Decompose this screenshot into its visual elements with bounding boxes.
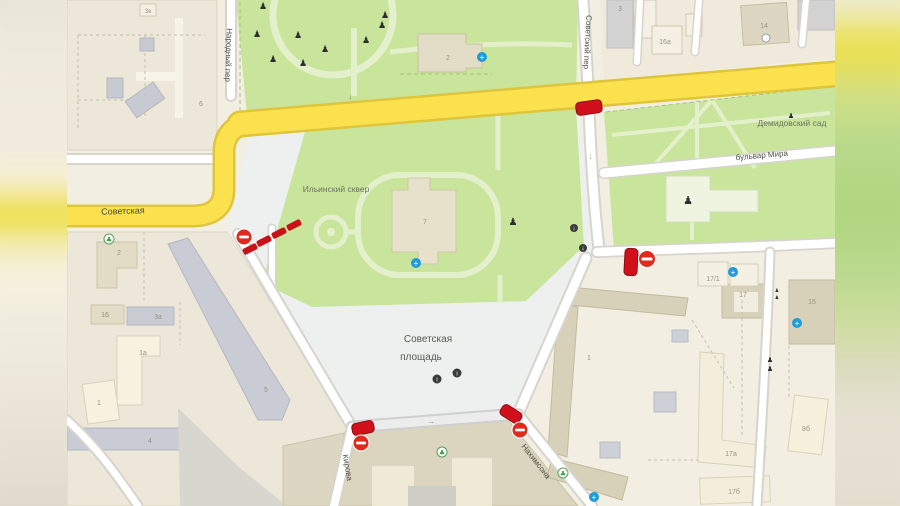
monument-icon: ♟ bbox=[509, 217, 518, 228]
park-label-ilyinsky-skver: Ильинский сквер bbox=[303, 184, 370, 194]
building-label: 7 bbox=[423, 219, 427, 226]
building-label: 5 bbox=[264, 387, 268, 394]
monument-icon: ♟ bbox=[269, 55, 277, 65]
monument-icon: ♟ bbox=[381, 11, 389, 21]
tree-icon-glyph: ♣ bbox=[106, 236, 112, 244]
building-label: 4 bbox=[148, 438, 152, 445]
medical-icon-glyph: + bbox=[731, 268, 736, 277]
monument-icon: ♟ bbox=[253, 30, 261, 40]
map-screenshot: Советская Народный пер Советский пер Кир… bbox=[0, 0, 900, 506]
blurred-backdrop-right bbox=[835, 0, 900, 506]
monument-icon: ♟ bbox=[259, 2, 267, 12]
no-entry-icon[interactable] bbox=[639, 251, 656, 268]
monument-icon: ♟ bbox=[683, 194, 693, 207]
building-label: 17б bbox=[728, 488, 740, 496]
no-entry-icon[interactable] bbox=[512, 422, 528, 438]
no-entry-icon[interactable] bbox=[353, 435, 369, 451]
info-icon-glyph: i bbox=[582, 247, 583, 253]
bus-stop-icon[interactable] bbox=[762, 34, 770, 42]
building-label: 16а bbox=[659, 39, 671, 46]
road-closure-marker[interactable] bbox=[624, 248, 638, 276]
building-label: 8б bbox=[802, 425, 810, 433]
info-icon-glyph: i bbox=[436, 378, 437, 384]
monument-icon: ♟ bbox=[294, 31, 302, 41]
tree-icon-glyph: ♣ bbox=[560, 470, 566, 478]
monument-icon: ♟ bbox=[378, 21, 386, 31]
street-label-narodny-per: Народный пер bbox=[223, 28, 234, 83]
building-label: 14 bbox=[760, 23, 768, 30]
medical-icon-glyph: + bbox=[480, 53, 485, 62]
square-label-line2: площадь bbox=[400, 352, 442, 363]
building-label: 2 bbox=[117, 250, 121, 257]
monument-icon: ♟ bbox=[788, 112, 794, 120]
building-label: 1а bbox=[139, 350, 147, 357]
tree-icon-glyph: ♣ bbox=[439, 449, 445, 457]
one-way-arrow-icon: → bbox=[347, 93, 356, 101]
monument-icon: ♟ bbox=[767, 365, 773, 373]
info-icon-glyph: i bbox=[456, 372, 457, 378]
one-way-arrow-icon: → bbox=[427, 417, 436, 427]
monument-icon: ♟ bbox=[299, 59, 307, 69]
monument-icon: ♟ bbox=[321, 45, 329, 55]
building-label: 3а bbox=[154, 314, 162, 321]
medical-icon-glyph: + bbox=[795, 319, 800, 328]
square-label-line1: Советская bbox=[404, 334, 452, 345]
building-label: 3в bbox=[145, 9, 152, 15]
building-label: 17/1 bbox=[706, 276, 720, 283]
info-icon-glyph: i bbox=[573, 227, 574, 233]
fountain-icon-glyph: + bbox=[414, 259, 419, 268]
map-canvas[interactable]: Советская Народный пер Советский пер Кир… bbox=[67, 0, 835, 506]
medical-icon-glyph: + bbox=[592, 493, 597, 502]
building-label: 3 bbox=[618, 6, 622, 13]
building-label: 1 bbox=[587, 355, 591, 362]
monument-icon: ♟ bbox=[775, 288, 779, 294]
monument-icon: ♟ bbox=[767, 356, 773, 364]
building-label: 2 bbox=[446, 55, 450, 62]
street-label-sovetskaya: Советская bbox=[101, 205, 145, 217]
building-label: 16 bbox=[101, 312, 109, 319]
blurred-backdrop-left bbox=[0, 0, 67, 506]
building-label: 1 bbox=[97, 400, 101, 407]
building-label: 17 bbox=[739, 292, 747, 299]
monument-icon: ♟ bbox=[362, 36, 370, 46]
building-label: 17а bbox=[725, 451, 737, 458]
building-label: 6 bbox=[199, 101, 203, 108]
one-way-arrow-icon: → bbox=[587, 153, 596, 161]
building-label: 15 bbox=[808, 299, 816, 306]
no-entry-icon[interactable] bbox=[236, 229, 252, 245]
monument-icon: ♟ bbox=[775, 295, 779, 301]
